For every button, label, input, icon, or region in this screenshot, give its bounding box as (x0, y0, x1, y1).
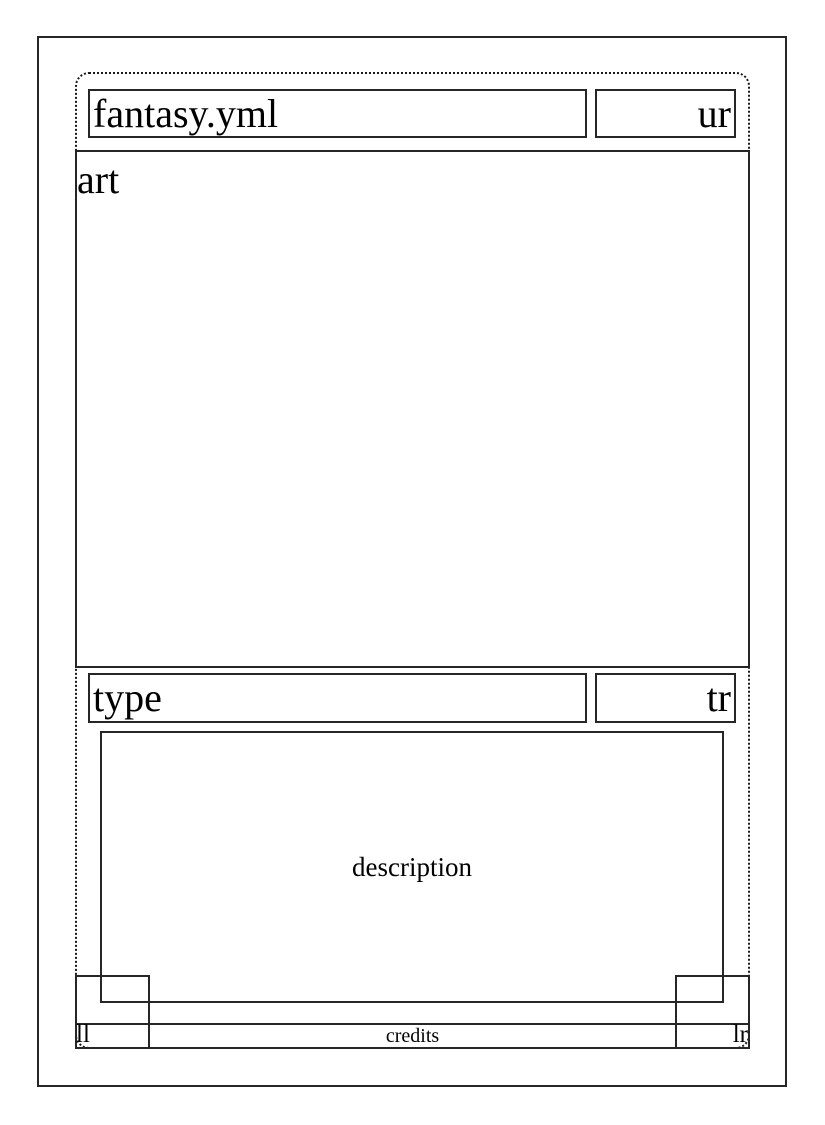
type-field: type (88, 673, 587, 723)
upper-right-field: ur (595, 89, 736, 138)
lower-left-label: ll (76, 1024, 90, 1047)
title-field: fantasy.yml (88, 89, 587, 138)
credits-field-label: credits (386, 1026, 439, 1046)
art-field: art (75, 150, 750, 668)
type-right-field-label: tr (707, 677, 731, 719)
description-field: description (100, 731, 724, 1003)
type-field-label: type (93, 677, 162, 719)
lower-right-label: lr (733, 1024, 748, 1047)
art-field-label: art (77, 160, 119, 200)
credits-field: credits (75, 1023, 750, 1049)
description-field-label: description (352, 852, 472, 883)
card-template-preview: fantasy.yml ur art type tr description c… (0, 0, 825, 1125)
upper-right-field-label: ur (698, 93, 731, 135)
type-right-field: tr (595, 673, 736, 723)
title-field-label: fantasy.yml (93, 93, 278, 135)
